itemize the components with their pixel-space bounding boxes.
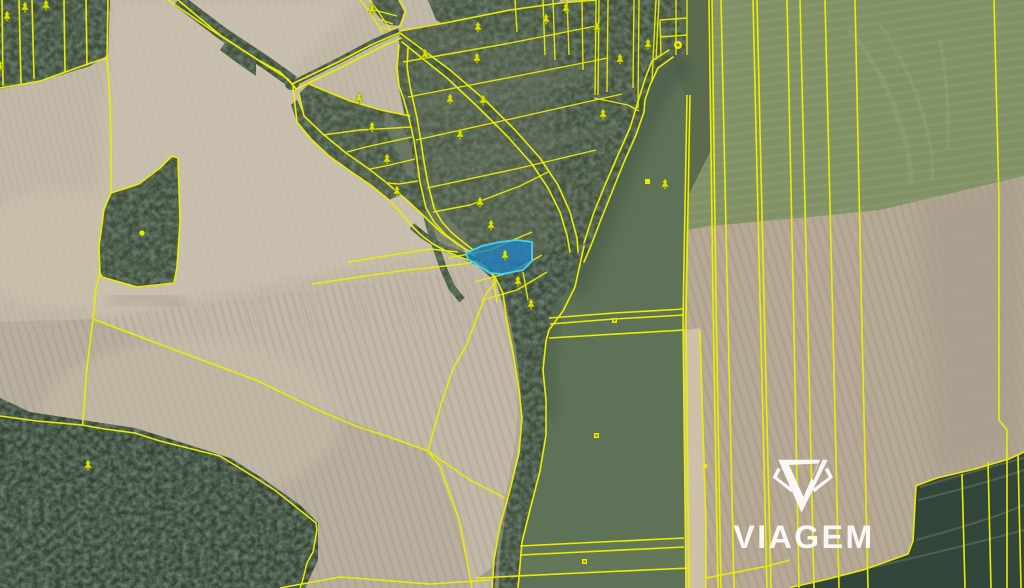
svg-text:VIAGEM: VIAGEM bbox=[733, 519, 874, 555]
